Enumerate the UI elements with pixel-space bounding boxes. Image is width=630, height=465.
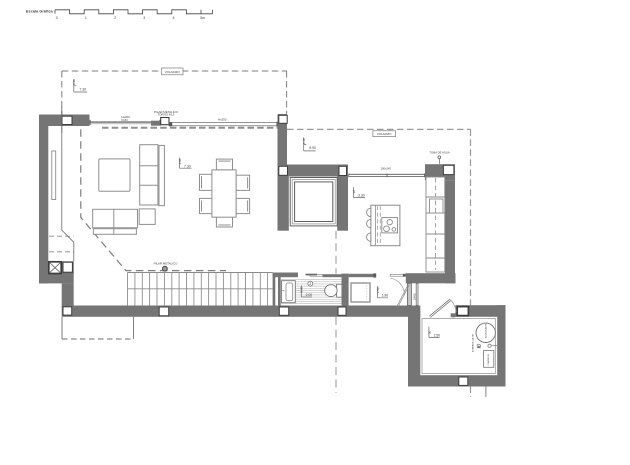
svg-text:1.90: 1.90 bbox=[382, 294, 389, 298]
svg-text:2.50: 2.50 bbox=[434, 333, 441, 337]
svg-text:CUADRO EL.: CUADRO EL. bbox=[487, 353, 490, 366]
svg-text:1: 1 bbox=[85, 16, 87, 20]
svg-text:4.60: 4.60 bbox=[178, 158, 182, 164]
svg-text:10: 10 bbox=[352, 190, 356, 194]
svg-text:90: 90 bbox=[427, 330, 431, 334]
svg-text:ACUMULADOR: ACUMULADOR bbox=[485, 323, 488, 338]
svg-text:2: 2 bbox=[114, 16, 116, 20]
svg-text:5.90: 5.90 bbox=[309, 146, 316, 150]
svg-text:2.00: 2.00 bbox=[306, 293, 313, 297]
svg-text:TORNO 40,3: TORNO 40,3 bbox=[158, 113, 175, 117]
svg-text:Escala Gráfica: Escala Gráfica bbox=[26, 10, 54, 14]
svg-text:TOMA DE AGUA: TOMA DE AGUA bbox=[429, 151, 449, 155]
svg-text:DP08: DP08 bbox=[413, 293, 417, 300]
svg-text:100x245: 100x245 bbox=[381, 167, 392, 171]
svg-text:0.90: 0.90 bbox=[300, 286, 304, 292]
svg-text:4: 4 bbox=[173, 16, 175, 20]
svg-text:1.50: 1.50 bbox=[376, 287, 380, 293]
svg-text:PILAR METALICO: PILAR METALICO bbox=[154, 262, 178, 266]
svg-text:3: 3 bbox=[309, 282, 311, 286]
svg-text:FIJO: FIJO bbox=[121, 118, 128, 122]
svg-text:2.60: 2.60 bbox=[72, 79, 76, 85]
svg-text:VOLADIZO: VOLADIZO bbox=[165, 70, 181, 74]
svg-text:1.10: 1.10 bbox=[302, 138, 306, 144]
svg-text:7.30: 7.30 bbox=[80, 87, 87, 91]
svg-text:VOLADIZO: VOLADIZO bbox=[377, 132, 392, 136]
svg-text:0: 0 bbox=[56, 16, 58, 20]
svg-text:BOMBA DE CALOR: BOMBA DE CALOR bbox=[472, 334, 475, 352]
svg-text:5m: 5m bbox=[200, 16, 205, 20]
svg-text:7.30: 7.30 bbox=[184, 164, 191, 168]
svg-text:3.30: 3.30 bbox=[358, 193, 365, 197]
svg-text:3: 3 bbox=[143, 16, 145, 20]
svg-text:Hx350: Hx350 bbox=[218, 118, 227, 122]
